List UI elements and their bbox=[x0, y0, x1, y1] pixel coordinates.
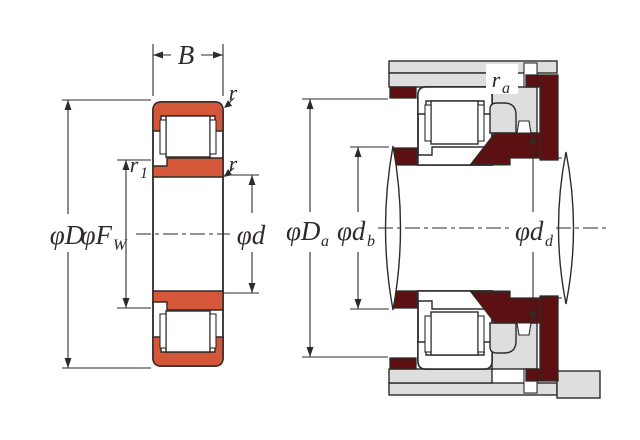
end-cover-bottom bbox=[540, 296, 558, 381]
label-housing-abutment: φD bbox=[286, 216, 321, 246]
label-housing-abutment-sub: a bbox=[321, 233, 329, 250]
label-raceway: φF bbox=[81, 220, 113, 250]
drawing-root: B φD φF W φd r r r 1 φD a φd b φd d r a bbox=[50, 40, 606, 398]
seal-hump-bottom bbox=[490, 323, 516, 353]
label-chamfer-outer: r bbox=[229, 80, 238, 105]
label-shaft-abutment: φd bbox=[337, 216, 366, 246]
arrow-d-up bbox=[249, 175, 256, 185]
roller-top bbox=[166, 116, 210, 157]
mounted-cage-bottom-right bbox=[478, 316, 484, 352]
cage-bottom-right bbox=[210, 314, 216, 348]
housing-shoulder-bottom bbox=[390, 358, 416, 369]
arrow-db-up bbox=[355, 147, 362, 157]
arrow-db-down bbox=[355, 299, 362, 309]
cage-top-left bbox=[160, 120, 166, 154]
housing-shoulder-top bbox=[390, 87, 416, 98]
housing-bottom-extension bbox=[557, 371, 600, 398]
housing-bottom-inner bbox=[389, 369, 492, 383]
mounted-roller-bottom bbox=[431, 312, 478, 355]
label-collar-abutment-sub: d bbox=[545, 233, 554, 250]
arrow-Fw-down bbox=[123, 298, 130, 308]
arrow-D-up bbox=[65, 100, 72, 110]
mounted-roller-top bbox=[431, 101, 478, 144]
shaft-shoulder-bottom bbox=[394, 291, 417, 308]
bearing-diagram: B φD φF W φd r r r 1 φD a φd b φd d r a bbox=[0, 0, 640, 440]
label-width-B: B bbox=[178, 40, 195, 70]
mounted-cage-top-right bbox=[478, 105, 484, 141]
mounted-cage-top-left bbox=[425, 105, 431, 141]
label-chamfer-rib-sub: 1 bbox=[140, 165, 148, 182]
label-chamfer-rib: r bbox=[130, 152, 139, 177]
label-collar-abutment: φd bbox=[515, 216, 544, 246]
arrow-B-left bbox=[153, 52, 163, 59]
arrow-Da-up bbox=[307, 99, 314, 109]
collar-step-bottom bbox=[517, 323, 531, 335]
label-chamfer-inner-face: r bbox=[229, 151, 238, 176]
collar-step-top bbox=[517, 121, 531, 133]
arrow-Fw-up bbox=[123, 160, 130, 170]
label-shaft-abutment-sub: b bbox=[367, 233, 375, 250]
drawing-canvas: B φD φF W φd r r r 1 φD a φd b φd d r a bbox=[0, 0, 640, 440]
label-raceway-sub: W bbox=[113, 237, 128, 254]
arrow-d-down bbox=[249, 283, 256, 293]
label-mount-fillet-sub: a bbox=[502, 80, 510, 97]
label-mount-fillet: r bbox=[492, 67, 501, 92]
end-cover-lip-top bbox=[526, 75, 540, 87]
shaft-shoulder-top bbox=[394, 148, 417, 165]
mounted-cage-bottom-left bbox=[425, 316, 431, 352]
end-cover-lip-bottom bbox=[526, 369, 540, 381]
roller-bottom bbox=[166, 311, 210, 352]
housing-top-inner bbox=[389, 73, 492, 87]
label-outer-diameter: φD bbox=[50, 220, 85, 250]
cage-top-right bbox=[210, 120, 216, 154]
seal-hump-top bbox=[490, 103, 516, 133]
arrow-B-right bbox=[213, 52, 223, 59]
arrow-Da-down bbox=[307, 347, 314, 357]
label-bore: φd bbox=[237, 220, 266, 250]
end-cover-top bbox=[540, 75, 558, 160]
arrow-D-down bbox=[65, 358, 72, 368]
cage-bottom-left bbox=[160, 314, 166, 348]
